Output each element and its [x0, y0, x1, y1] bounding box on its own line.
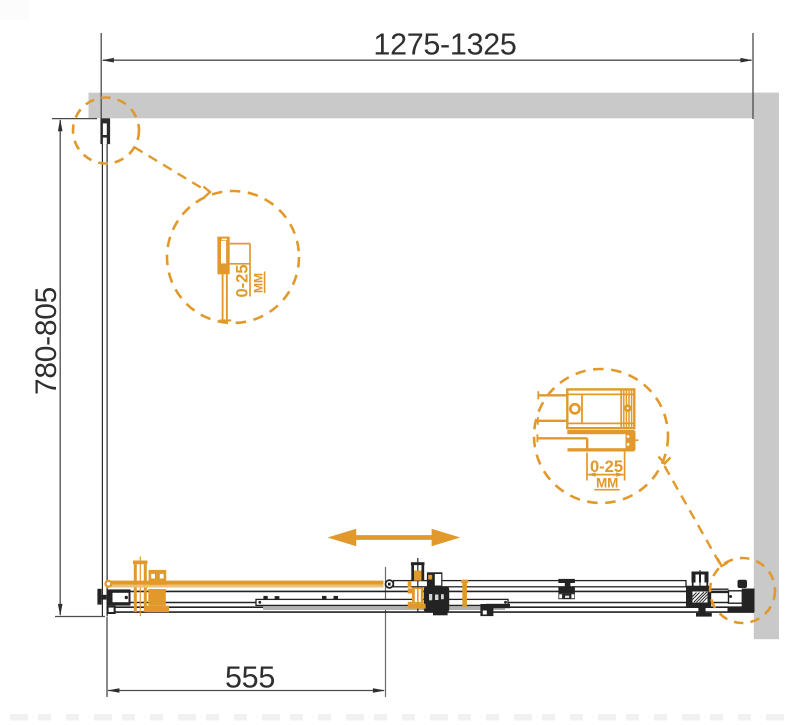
svg-text:0-25: 0-25 [590, 458, 623, 476]
svg-text:ММ: ММ [596, 476, 619, 491]
svg-text:ММ: ММ [252, 273, 266, 293]
svg-text:0-25: 0-25 [234, 264, 252, 297]
svg-text:555: 555 [225, 661, 275, 695]
svg-text:780-805: 780-805 [30, 287, 63, 395]
svg-text:1275-1325: 1275-1325 [373, 28, 516, 62]
